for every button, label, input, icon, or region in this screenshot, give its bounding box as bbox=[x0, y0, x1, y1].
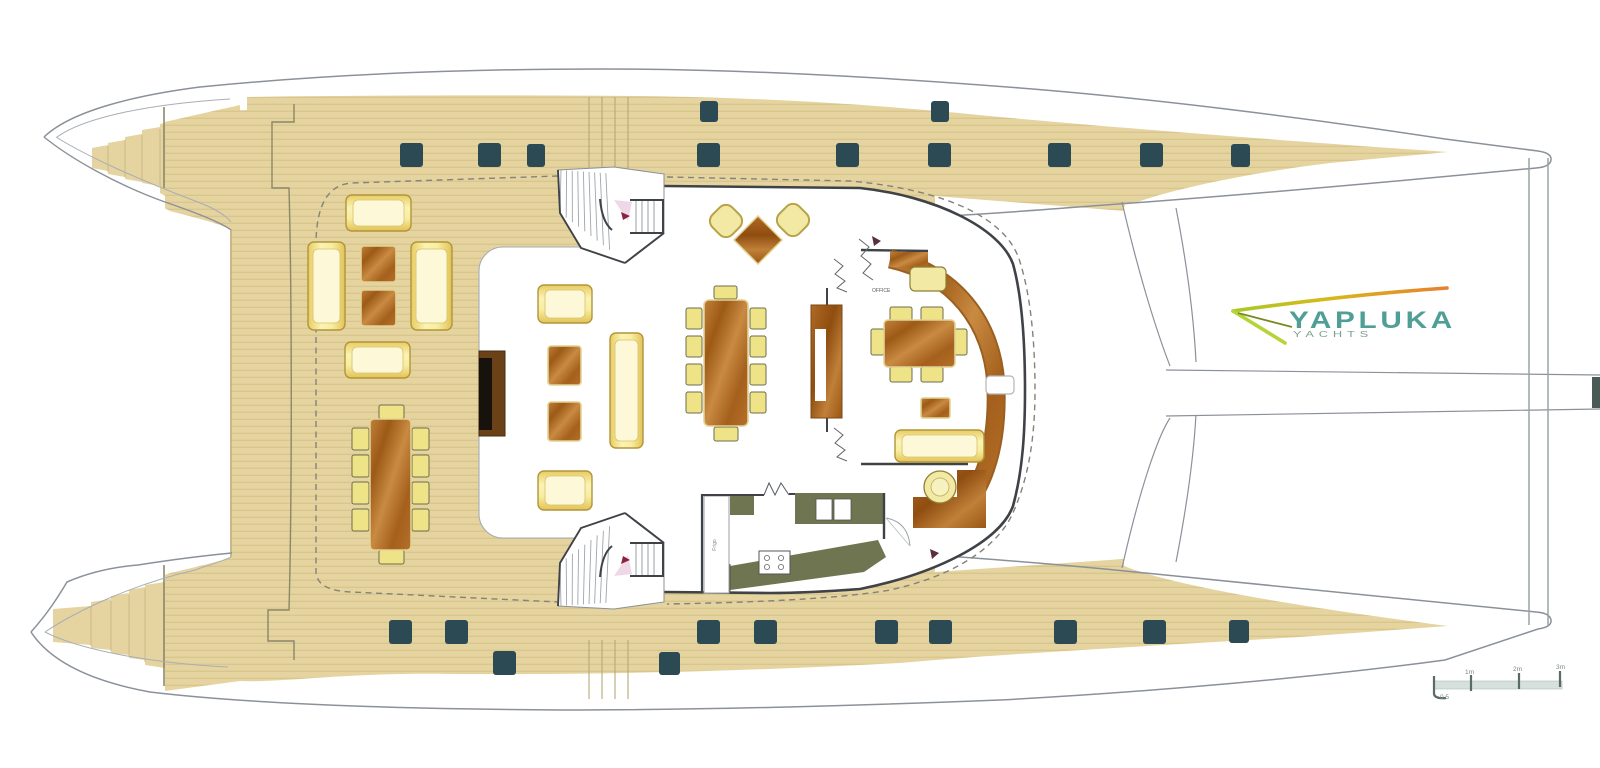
svg-text:Frigo: Frigo bbox=[712, 539, 718, 551]
svg-text:2m: 2m bbox=[1513, 666, 1522, 673]
svg-text:YACHTS: YACHTS bbox=[1293, 330, 1373, 339]
svg-text:1m: 1m bbox=[1465, 669, 1474, 676]
svg-text:0,5: 0,5 bbox=[1440, 694, 1449, 701]
svg-text:OFFICE: OFFICE bbox=[872, 288, 891, 294]
svg-text:3m: 3m bbox=[1556, 664, 1565, 671]
